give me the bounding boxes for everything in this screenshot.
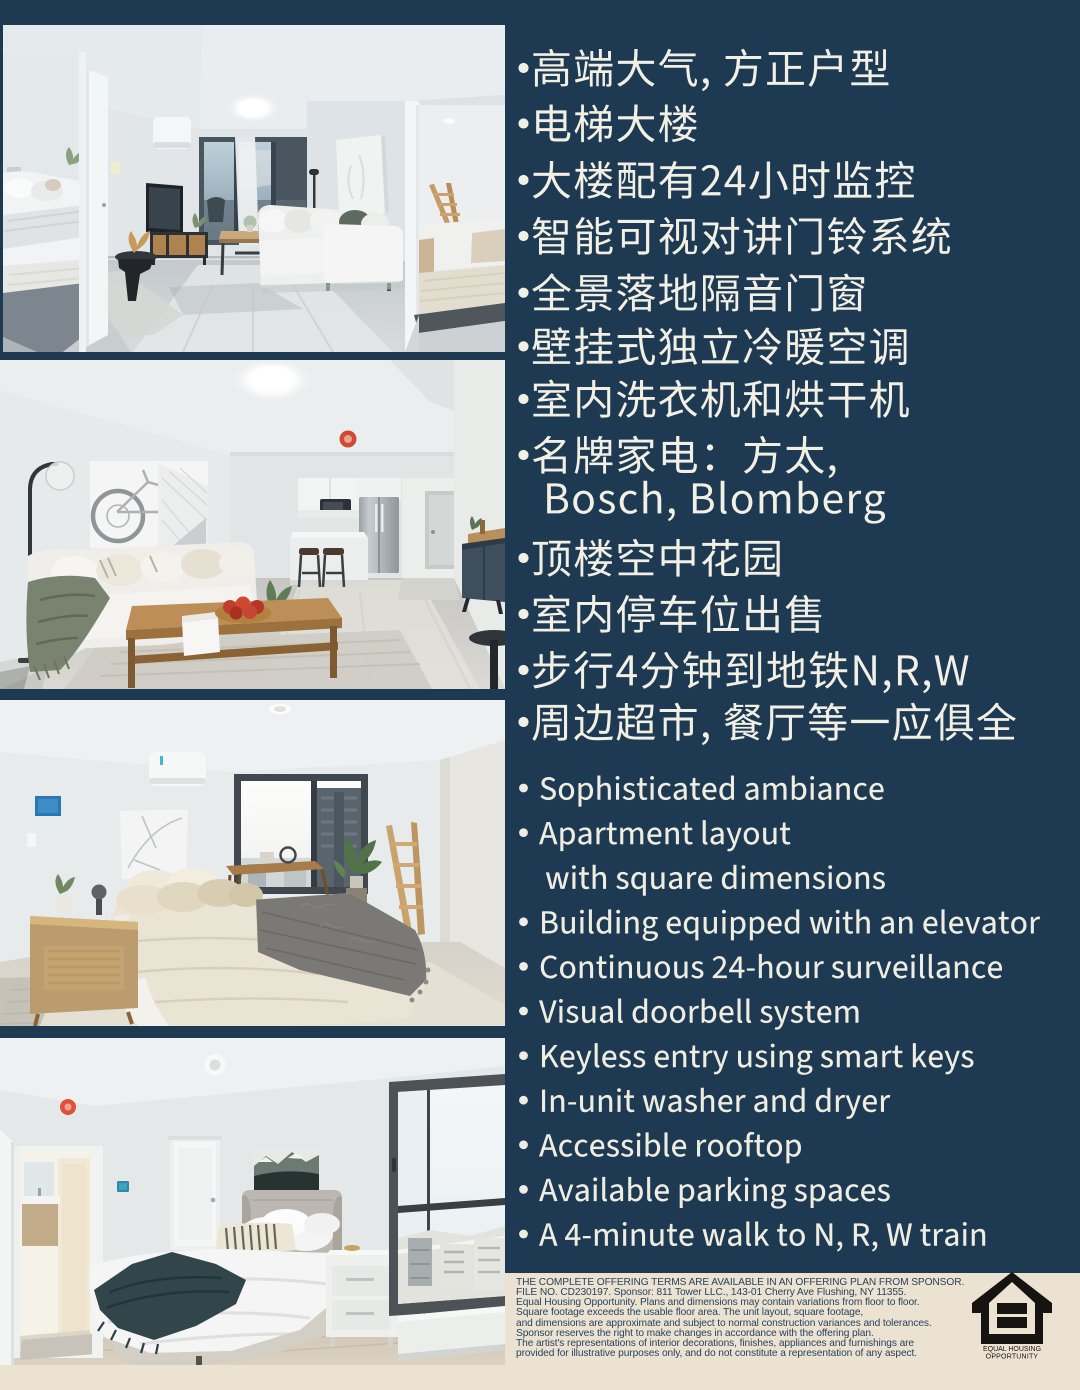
svg-text:EQUAL HOUSING: EQUAL HOUSING xyxy=(983,1346,1041,1353)
svg-text:OPPORTUNITY: OPPORTUNITY xyxy=(986,1354,1039,1361)
